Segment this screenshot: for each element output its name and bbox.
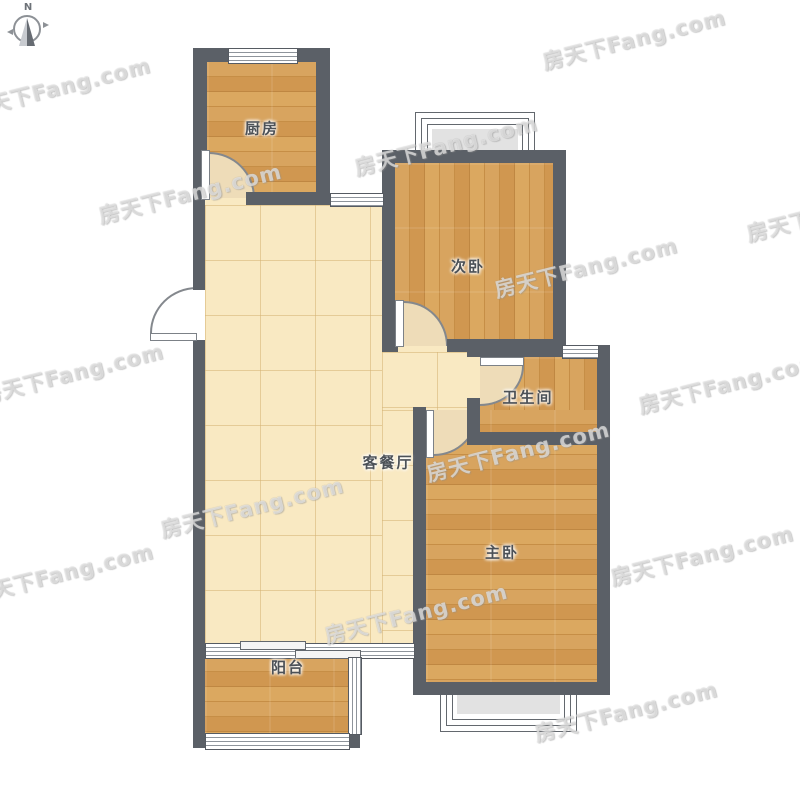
- wall: [193, 643, 205, 748]
- compass-north-label: N: [24, 2, 32, 13]
- wall: [467, 432, 610, 445]
- kitchen-window: [228, 48, 298, 64]
- watermark-text: 房天下Fang.com: [0, 536, 157, 611]
- room-label-living-dining: 客餐厅: [362, 452, 413, 473]
- compass: N: [6, 2, 50, 56]
- room-label-bathroom: 卫生间: [502, 387, 553, 408]
- wall: [413, 682, 610, 695]
- wall: [193, 200, 205, 290]
- room-label-second-bedroom: 次卧: [451, 256, 485, 277]
- compass-needle-light: [19, 18, 27, 46]
- room-label-balcony: 阳台: [271, 657, 305, 678]
- compass-west-arrow: [7, 29, 13, 35]
- floor-plan: 厨房 次卧 卫生间 客餐厅 主卧 阳台 房天下Fang.com房天下Fang.c…: [0, 0, 800, 800]
- wall: [467, 345, 562, 357]
- wall: [246, 192, 330, 205]
- entrance-door-leaf: [150, 333, 197, 341]
- compass-east-arrow: [43, 22, 49, 28]
- wall: [553, 150, 566, 352]
- wall: [382, 150, 566, 163]
- watermark-text: 房天下Fang.com: [0, 50, 154, 125]
- watermark-text: 房天下Fang.com: [539, 2, 729, 77]
- watermark-text: 房天下Fang.com: [607, 518, 797, 593]
- kitchen-door-leaf: [201, 150, 210, 200]
- watermark-text: 房天下Fang.com: [635, 346, 800, 421]
- bay-window-glass: [457, 694, 560, 714]
- wall: [597, 445, 610, 695]
- watermark-text: 房天下Fang.com: [743, 174, 800, 249]
- living-dining-floor: [205, 205, 382, 643]
- room-label-kitchen: 厨房: [245, 118, 279, 139]
- balcony-side-window: [348, 657, 362, 735]
- bathroom-window: [562, 345, 599, 359]
- wall: [193, 340, 205, 643]
- bathroom-door-threshold: [467, 357, 480, 398]
- living-room-window: [330, 193, 384, 207]
- master-bedroom-door-leaf: [426, 410, 434, 458]
- room-label-master-bedroom: 主卧: [485, 542, 519, 563]
- sliding-door-panel: [240, 641, 306, 650]
- balcony-front-window: [205, 733, 350, 750]
- second-bedroom-door-leaf: [395, 300, 404, 347]
- entrance-door-swing: [150, 287, 197, 333]
- wall: [597, 345, 610, 445]
- hallway-floor: [382, 352, 467, 410]
- compass-needle-dark: [27, 18, 35, 46]
- living-dining-floor-strip: [382, 410, 413, 643]
- watermark-text: 房天下Fang.com: [0, 336, 167, 411]
- wall: [382, 150, 395, 352]
- bathroom-door-leaf: [480, 357, 524, 366]
- wall: [316, 48, 330, 205]
